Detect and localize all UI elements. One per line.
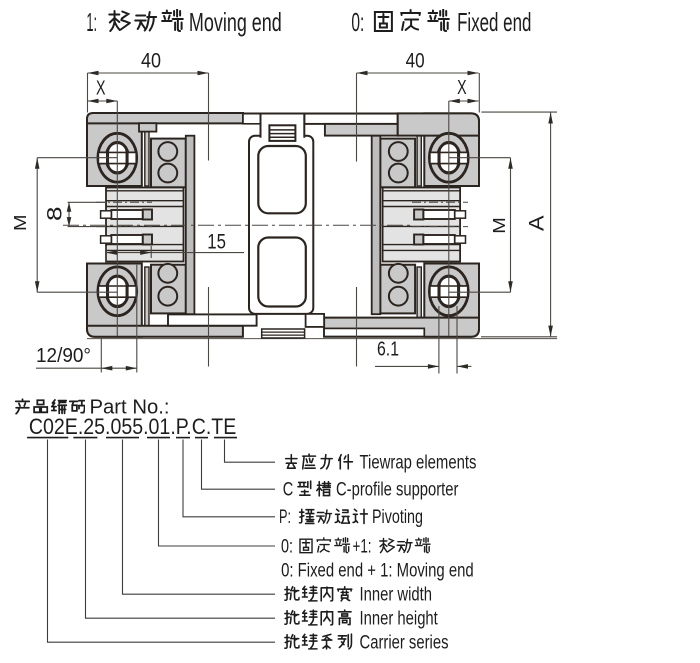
- svg-text:0:: 0:: [351, 7, 364, 37]
- svg-text:Moving end: Moving end: [189, 7, 282, 37]
- svg-text:A: A: [525, 215, 549, 231]
- svg-text:8: 8: [44, 206, 67, 221]
- svg-text:0: Fixed end + 1: Moving end: 0: Fixed end + 1: Moving end: [281, 561, 474, 582]
- svg-text:Inner height: Inner height: [360, 609, 439, 630]
- svg-text:C02E.25.055.01.P.C.TE: C02E.25.055.01.P.C.TE: [29, 414, 236, 439]
- svg-text:6.1: 6.1: [377, 339, 399, 361]
- svg-text:40: 40: [141, 49, 161, 72]
- svg-text:Carrier series: Carrier series: [360, 633, 449, 654]
- svg-text:X: X: [457, 77, 467, 99]
- svg-text:1:: 1:: [86, 7, 97, 37]
- svg-text:C-profile supporter: C-profile supporter: [336, 480, 459, 501]
- svg-text:Fixed end: Fixed end: [457, 7, 531, 37]
- svg-text:0:: 0:: [281, 536, 293, 557]
- svg-text:Pivoting: Pivoting: [372, 507, 423, 528]
- svg-text:X: X: [96, 78, 106, 100]
- svg-text:12/90°: 12/90°: [36, 345, 91, 367]
- svg-text:M: M: [489, 217, 509, 234]
- svg-text:15: 15: [207, 230, 226, 254]
- svg-text:40: 40: [406, 49, 425, 72]
- svg-text:Inner width: Inner width: [360, 585, 433, 606]
- svg-text:+1:: +1:: [353, 536, 372, 557]
- svg-text:C: C: [283, 480, 294, 501]
- svg-text:M: M: [10, 214, 30, 231]
- svg-text:P:: P:: [279, 507, 291, 528]
- svg-text:Tiewrap elements: Tiewrap elements: [360, 453, 477, 474]
